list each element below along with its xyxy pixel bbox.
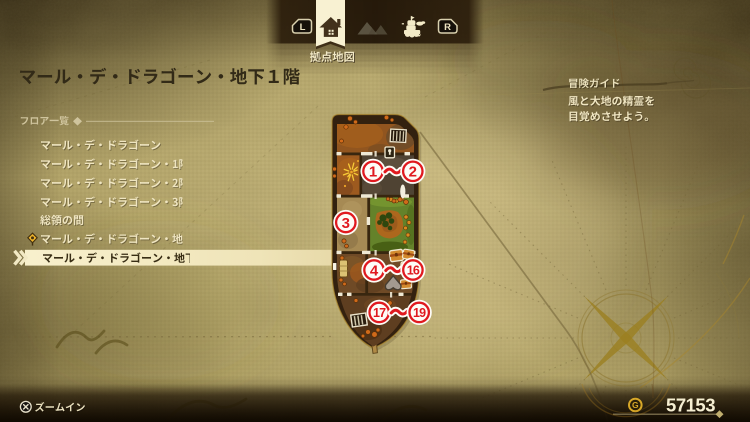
svg-text:3: 3 <box>342 215 350 232</box>
svg-text:R: R <box>444 22 451 33</box>
svg-text:17: 17 <box>373 306 386 320</box>
svg-text:19: 19 <box>413 306 426 320</box>
svg-text:2: 2 <box>409 164 417 181</box>
svg-text:4: 4 <box>370 262 379 279</box>
svg-text:16: 16 <box>407 264 420 278</box>
svg-text:L: L <box>300 22 306 33</box>
svg-text:57153: 57153 <box>666 394 715 415</box>
svg-text:1: 1 <box>369 164 377 181</box>
svg-text:G: G <box>632 400 639 410</box>
